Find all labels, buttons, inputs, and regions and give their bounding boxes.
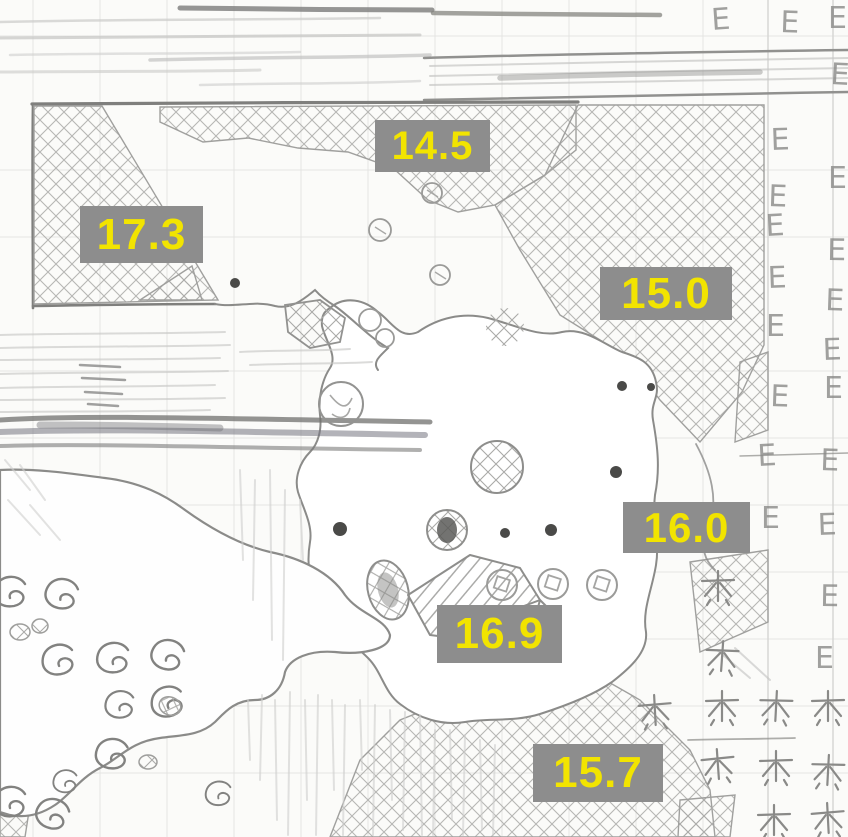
e-glyph: E — [820, 443, 840, 479]
e-glyph: E — [770, 379, 790, 415]
e-glyph: E — [815, 641, 834, 676]
e-glyph: E — [828, 161, 847, 196]
e-glyph: E — [820, 579, 840, 614]
measurement-label-14-5: 14.5 — [375, 120, 490, 172]
measurement-label-15-0: 15.0 — [600, 267, 732, 320]
e-glyph: E — [824, 371, 843, 406]
e-glyph: E — [817, 507, 837, 543]
sketch-map-screenshot: E E E E E E E E E E E E E E E E E E E E … — [0, 0, 848, 837]
e-glyph: E — [780, 5, 800, 41]
measurement-label-16-0: 16.0 — [623, 502, 750, 553]
hatched-knoll — [486, 308, 524, 346]
hatch-bottom-right — [678, 795, 735, 837]
e-glyph: E — [766, 309, 785, 344]
e-glyph: E — [825, 283, 845, 319]
e-glyph: E — [822, 332, 842, 368]
e-glyph: E — [830, 57, 848, 93]
e-glyph: E — [710, 2, 731, 38]
e-glyph: E — [828, 1, 847, 36]
e-glyph: E — [827, 233, 847, 268]
measurement-label-15-7: 15.7 — [533, 744, 663, 802]
hatched-mound — [471, 441, 523, 493]
e-glyph: E — [767, 260, 787, 296]
measurement-label-16-9: 16.9 — [437, 605, 562, 663]
e-glyph: E — [761, 501, 780, 536]
e-glyph: E — [757, 438, 778, 474]
measurement-label-17-3: 17.3 — [80, 206, 203, 263]
hatch-east-strip — [735, 352, 768, 442]
e-glyph: E — [770, 122, 790, 158]
e-glyph: E — [765, 208, 786, 244]
